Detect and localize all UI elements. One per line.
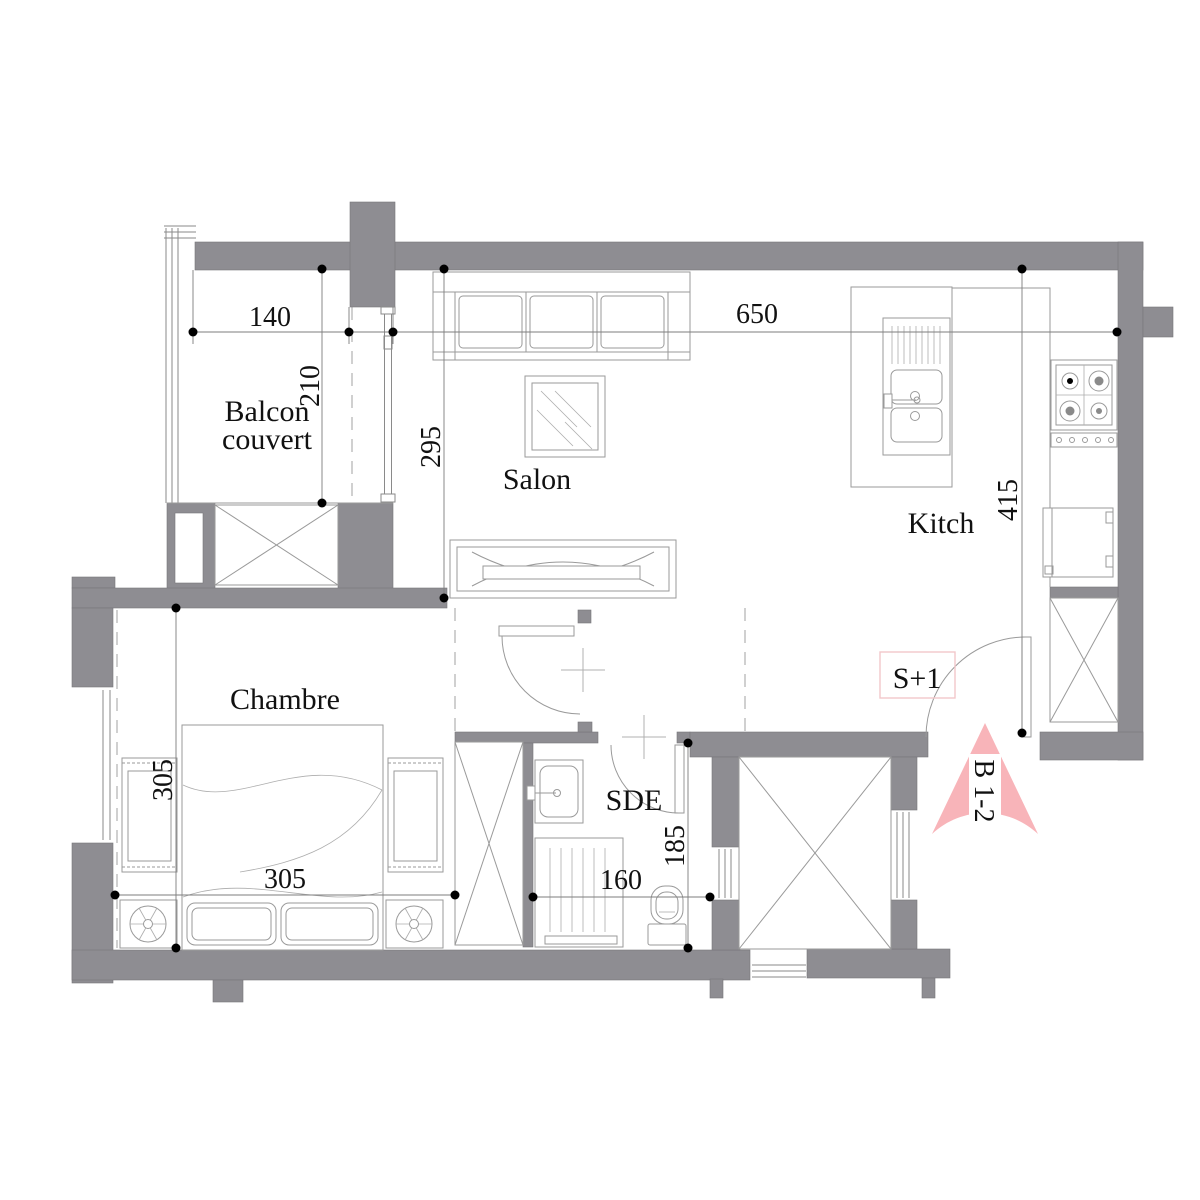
elevator-shaft (739, 757, 891, 949)
label-bedroom: Chambre (230, 683, 340, 716)
coffee-table (525, 376, 605, 457)
wall-top (195, 242, 1143, 270)
dim-bedroom-depth: 305 (148, 759, 179, 801)
dim-kitchen-depth: 415 (993, 479, 1024, 521)
label-block-ref: B 1-2 (968, 760, 999, 823)
dim-sde-depth: 185 (660, 825, 691, 867)
entry-arrow: B 1-2 (932, 723, 1038, 834)
balcony-duct (215, 505, 338, 585)
toilet (648, 886, 686, 945)
label-kitchen: Kitch (908, 507, 975, 540)
tv-unit (450, 540, 676, 598)
wall-elevator-top (690, 732, 928, 757)
bed (182, 725, 383, 950)
bedroom-window (103, 690, 110, 840)
dim-balcony-width: 140 (249, 302, 291, 333)
washbasin (527, 760, 583, 823)
nightstand-right (388, 758, 443, 872)
label-salon: Salon (503, 463, 571, 496)
kitchen-duct (1050, 598, 1118, 722)
fridge (1043, 508, 1113, 577)
balcony-railing (164, 226, 196, 503)
kitchen-island-sink (851, 287, 952, 487)
wall-bottom (72, 950, 750, 980)
stool-right (386, 900, 443, 948)
wall-left (72, 608, 113, 687)
counter-edge (952, 288, 1050, 587)
unit-label: S+1 (880, 652, 955, 698)
wardrobe (455, 742, 523, 945)
wall-right (1118, 242, 1143, 760)
hob (1051, 360, 1117, 447)
wall-bottom-right (1040, 732, 1143, 760)
sofa (433, 272, 690, 360)
dim-salon-depth: 295 (416, 426, 447, 468)
dim-sde-width: 160 (600, 865, 642, 896)
label-balcony-line2: couvert (222, 423, 313, 456)
floor-plan-canvas: 140 650 210 295 415 305 305 160 185 Balc… (0, 0, 1200, 1200)
dim-bedroom-width: 305 (264, 864, 306, 895)
label-unit-type: S+1 (893, 662, 942, 695)
label-shower: SDE (606, 784, 663, 817)
wall-mid-horizontal (72, 588, 447, 608)
dim-living-width: 650 (736, 299, 778, 330)
floor-plan-page: 140 650 210 295 415 305 305 160 185 Balc… (0, 0, 1200, 1200)
stool-left (120, 900, 177, 948)
wall-top-stub (350, 202, 395, 307)
